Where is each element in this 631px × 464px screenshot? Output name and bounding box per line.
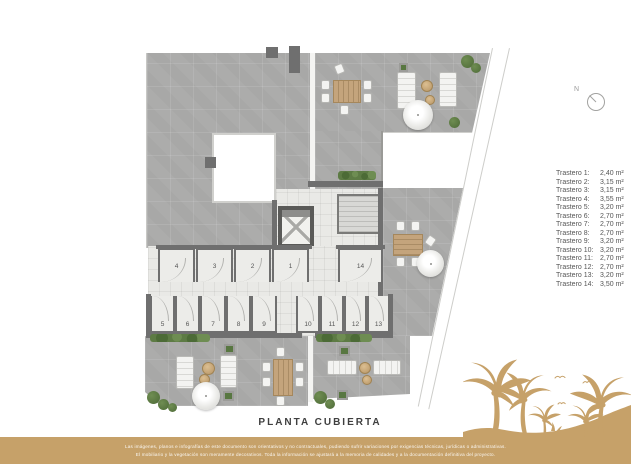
chair xyxy=(363,93,372,103)
side-table xyxy=(362,375,372,385)
planter-box xyxy=(223,391,234,401)
legend-label: Trastero 8: xyxy=(556,230,600,239)
legend-row: Trastero 13:3,20 m² xyxy=(556,272,631,281)
north-indicator: N xyxy=(574,85,610,111)
hedge-planter xyxy=(316,334,372,342)
planter-box xyxy=(337,390,348,400)
legend-value: 3,20 m² xyxy=(600,272,624,281)
planter-box xyxy=(399,63,408,72)
disclaimer-bar: Las imágenes, planos e infografías de es… xyxy=(0,437,631,464)
storage-room-7: 7 xyxy=(200,296,226,333)
planter-box xyxy=(339,346,350,356)
legend-value: 2,70 m² xyxy=(600,264,624,273)
room-number: 13 xyxy=(369,296,388,331)
legend-row: Trastero 4:3,55 m² xyxy=(556,196,631,205)
dining-table xyxy=(333,80,361,103)
legend-value: 2,70 m² xyxy=(600,255,624,264)
room-number: 2 xyxy=(236,250,269,282)
legend-row: Trastero 6:2,70 m² xyxy=(556,213,631,222)
storage-room-12: 12 xyxy=(344,296,367,333)
chair xyxy=(411,221,420,231)
storage-room-5: 5 xyxy=(150,296,175,333)
chair xyxy=(321,93,330,103)
storage-room-11: 11 xyxy=(320,296,344,333)
north-label: N xyxy=(574,86,579,93)
legend-row: Trastero 12:2,70 m² xyxy=(556,264,631,273)
storage-room-2: 2 xyxy=(234,248,271,282)
chair xyxy=(321,80,330,90)
room-number: 1 xyxy=(274,250,307,282)
sun-lounger xyxy=(373,360,401,375)
roof-joint xyxy=(310,53,315,189)
storage-room-10: 10 xyxy=(296,296,320,333)
legend-value: 3,20 m² xyxy=(600,204,624,213)
legend-label: Trastero 12: xyxy=(556,264,600,273)
room-number: 9 xyxy=(253,296,275,331)
room-number: 10 xyxy=(298,296,318,331)
sun-lounger xyxy=(439,72,457,107)
legend-row: Trastero 7:2,70 m² xyxy=(556,221,631,230)
page: 4 3 2 1 14 5 6 7 8 9 xyxy=(0,0,631,464)
elevator-shaft xyxy=(278,206,314,248)
legend-label: Trastero 5: xyxy=(556,204,600,213)
legend-row: Trastero 10:3,20 m² xyxy=(556,247,631,256)
legend-value: 3,20 m² xyxy=(600,238,624,247)
room-number: 5 xyxy=(152,296,173,331)
sun-lounger xyxy=(220,355,237,388)
compass-icon xyxy=(583,89,609,115)
legend-label: Trastero 4: xyxy=(556,196,600,205)
storage-room-4: 4 xyxy=(158,248,195,282)
parasol xyxy=(417,250,444,277)
dining-table xyxy=(393,234,423,256)
room-number: 4 xyxy=(160,250,193,282)
chair xyxy=(276,347,285,357)
legend-value: 3,55 m² xyxy=(600,196,624,205)
legend-label: Trastero 13: xyxy=(556,272,600,281)
legend-label: Trastero 14: xyxy=(556,281,600,290)
core-wall xyxy=(308,181,383,187)
legend-label: Trastero 10: xyxy=(556,247,600,256)
disclaimer-line-1: Las imágenes, planos e infografías de es… xyxy=(125,444,506,449)
bush xyxy=(168,403,177,412)
storage-room-1: 1 xyxy=(272,248,309,282)
core-wall xyxy=(272,200,277,248)
patio-void xyxy=(212,133,276,203)
chair xyxy=(295,362,304,372)
sun-lounger xyxy=(176,356,194,389)
room-number: 14 xyxy=(340,250,381,282)
legend-row: Trastero 8:2,70 m² xyxy=(556,230,631,239)
chair xyxy=(276,396,285,406)
legend-value: 3,15 m² xyxy=(600,179,624,188)
legend-label: Trastero 7: xyxy=(556,221,600,230)
storage-room-6: 6 xyxy=(175,296,200,333)
room-number: 3 xyxy=(198,250,231,282)
bush xyxy=(471,63,481,73)
legend-row: Trastero 9:3,20 m² xyxy=(556,238,631,247)
legend-row: Trastero 11:2,70 m² xyxy=(556,255,631,264)
legend-label: Trastero 1: xyxy=(556,170,600,179)
legend-row: Trastero 14:3,50 m² xyxy=(556,281,631,290)
chair xyxy=(295,377,304,387)
storage-room-14: 14 xyxy=(338,248,383,282)
storage-room-13: 13 xyxy=(367,296,390,333)
parasol xyxy=(192,382,220,410)
side-table xyxy=(421,80,433,92)
chair xyxy=(396,257,405,267)
legend-label: Trastero 2: xyxy=(556,179,600,188)
room-number: 11 xyxy=(322,296,342,331)
planter-box xyxy=(224,344,235,354)
legend-label: Trastero 9: xyxy=(556,238,600,247)
legend-value: 2,70 m² xyxy=(600,221,624,230)
vent-block xyxy=(205,157,216,168)
legend-value: 3,20 m² xyxy=(600,247,624,256)
room-number: 12 xyxy=(346,296,365,331)
chair xyxy=(396,221,405,231)
chair xyxy=(262,362,271,372)
legend-label: Trastero 6: xyxy=(556,213,600,222)
roof-joint xyxy=(308,336,313,402)
legend-value: 2,40 m² xyxy=(600,170,624,179)
chair xyxy=(363,80,372,90)
storage-room-3: 3 xyxy=(196,248,233,282)
legend-value: 2,70 m² xyxy=(600,213,624,222)
bush xyxy=(325,399,335,409)
vent-block xyxy=(266,47,278,58)
staircase xyxy=(337,194,381,234)
legend-label: Trastero 3: xyxy=(556,187,600,196)
hedge-planter xyxy=(338,171,376,180)
side-table xyxy=(359,362,371,374)
storage-room-8: 8 xyxy=(226,296,251,333)
room-number: 8 xyxy=(228,296,249,331)
vent-block xyxy=(289,46,300,73)
chair xyxy=(340,105,349,115)
legend-value: 3,15 m² xyxy=(600,187,624,196)
dining-table xyxy=(273,359,293,396)
chair xyxy=(262,377,271,387)
room-number: 7 xyxy=(202,296,224,331)
room-number: 6 xyxy=(177,296,198,331)
legend-value: 2,70 m² xyxy=(600,230,624,239)
page-title: PLANTA CUBIERTA xyxy=(140,417,500,428)
hedge-planter xyxy=(150,334,210,342)
legend-value: 3,50 m² xyxy=(600,281,624,290)
disclaimer-line-2: El mobiliario y la vegetación son merame… xyxy=(136,452,496,457)
legend-row: Trastero 1:2,40 m² xyxy=(556,170,631,179)
void-edge-line xyxy=(383,132,472,133)
bush xyxy=(449,117,460,128)
storage-room-9: 9 xyxy=(251,296,277,333)
legend-row: Trastero 3:3,15 m² xyxy=(556,187,631,196)
palm-trees-graphic xyxy=(463,352,631,437)
sun-lounger xyxy=(327,360,357,375)
legend-row: Trastero 2:3,15 m² xyxy=(556,179,631,188)
legend-row: Trastero 5:3,20 m² xyxy=(556,204,631,213)
legend-label: Trastero 11: xyxy=(556,255,600,264)
parasol xyxy=(403,100,433,130)
area-legend: Trastero 1:2,40 m² Trastero 2:3,15 m² Tr… xyxy=(556,170,631,289)
